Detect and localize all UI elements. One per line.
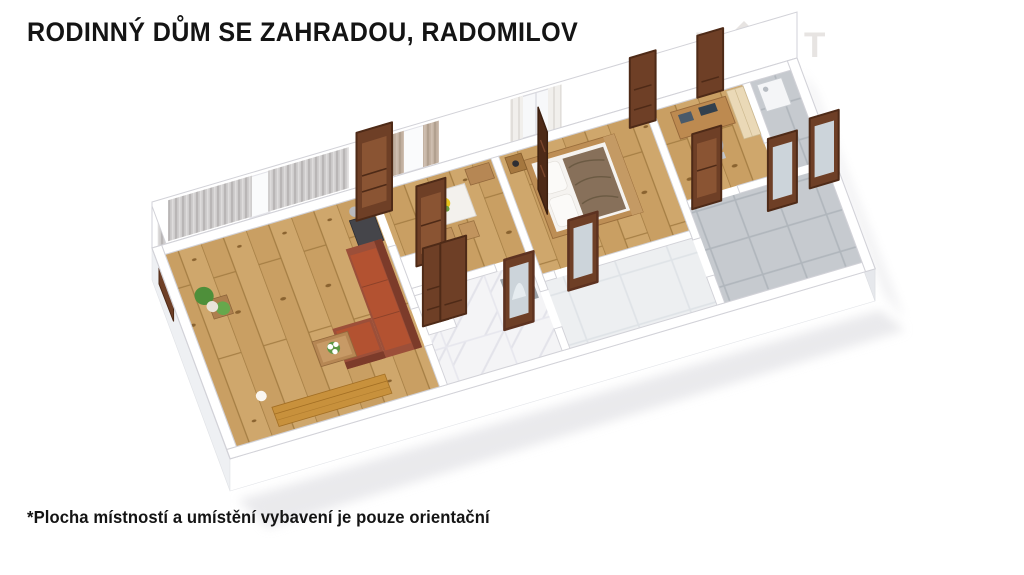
door-utility-2 [810,110,839,189]
mirror-frame-1 [504,251,533,330]
door-utility-1 [768,130,797,211]
kitchen-curtain-2 [423,121,439,168]
door-hall-3 [440,236,466,322]
mirror-frame-2 [568,212,597,291]
floor-plan-3d [0,0,1024,575]
bedroom-curtain-left [510,96,523,144]
door-bedroom-back [630,50,656,128]
door-office-back [697,28,723,98]
door-living-kitchen [357,122,393,221]
disclaimer-note: *Plocha místností a umístění vybavení je… [27,507,490,528]
door-office-front [692,126,721,210]
bedroom-curtain-right [548,84,562,132]
real-estate-floorplan-page: RODINNÝ DŮM SE ZAHRADOU, RADOMILOV N X T [0,0,1024,575]
living-window [250,171,270,218]
